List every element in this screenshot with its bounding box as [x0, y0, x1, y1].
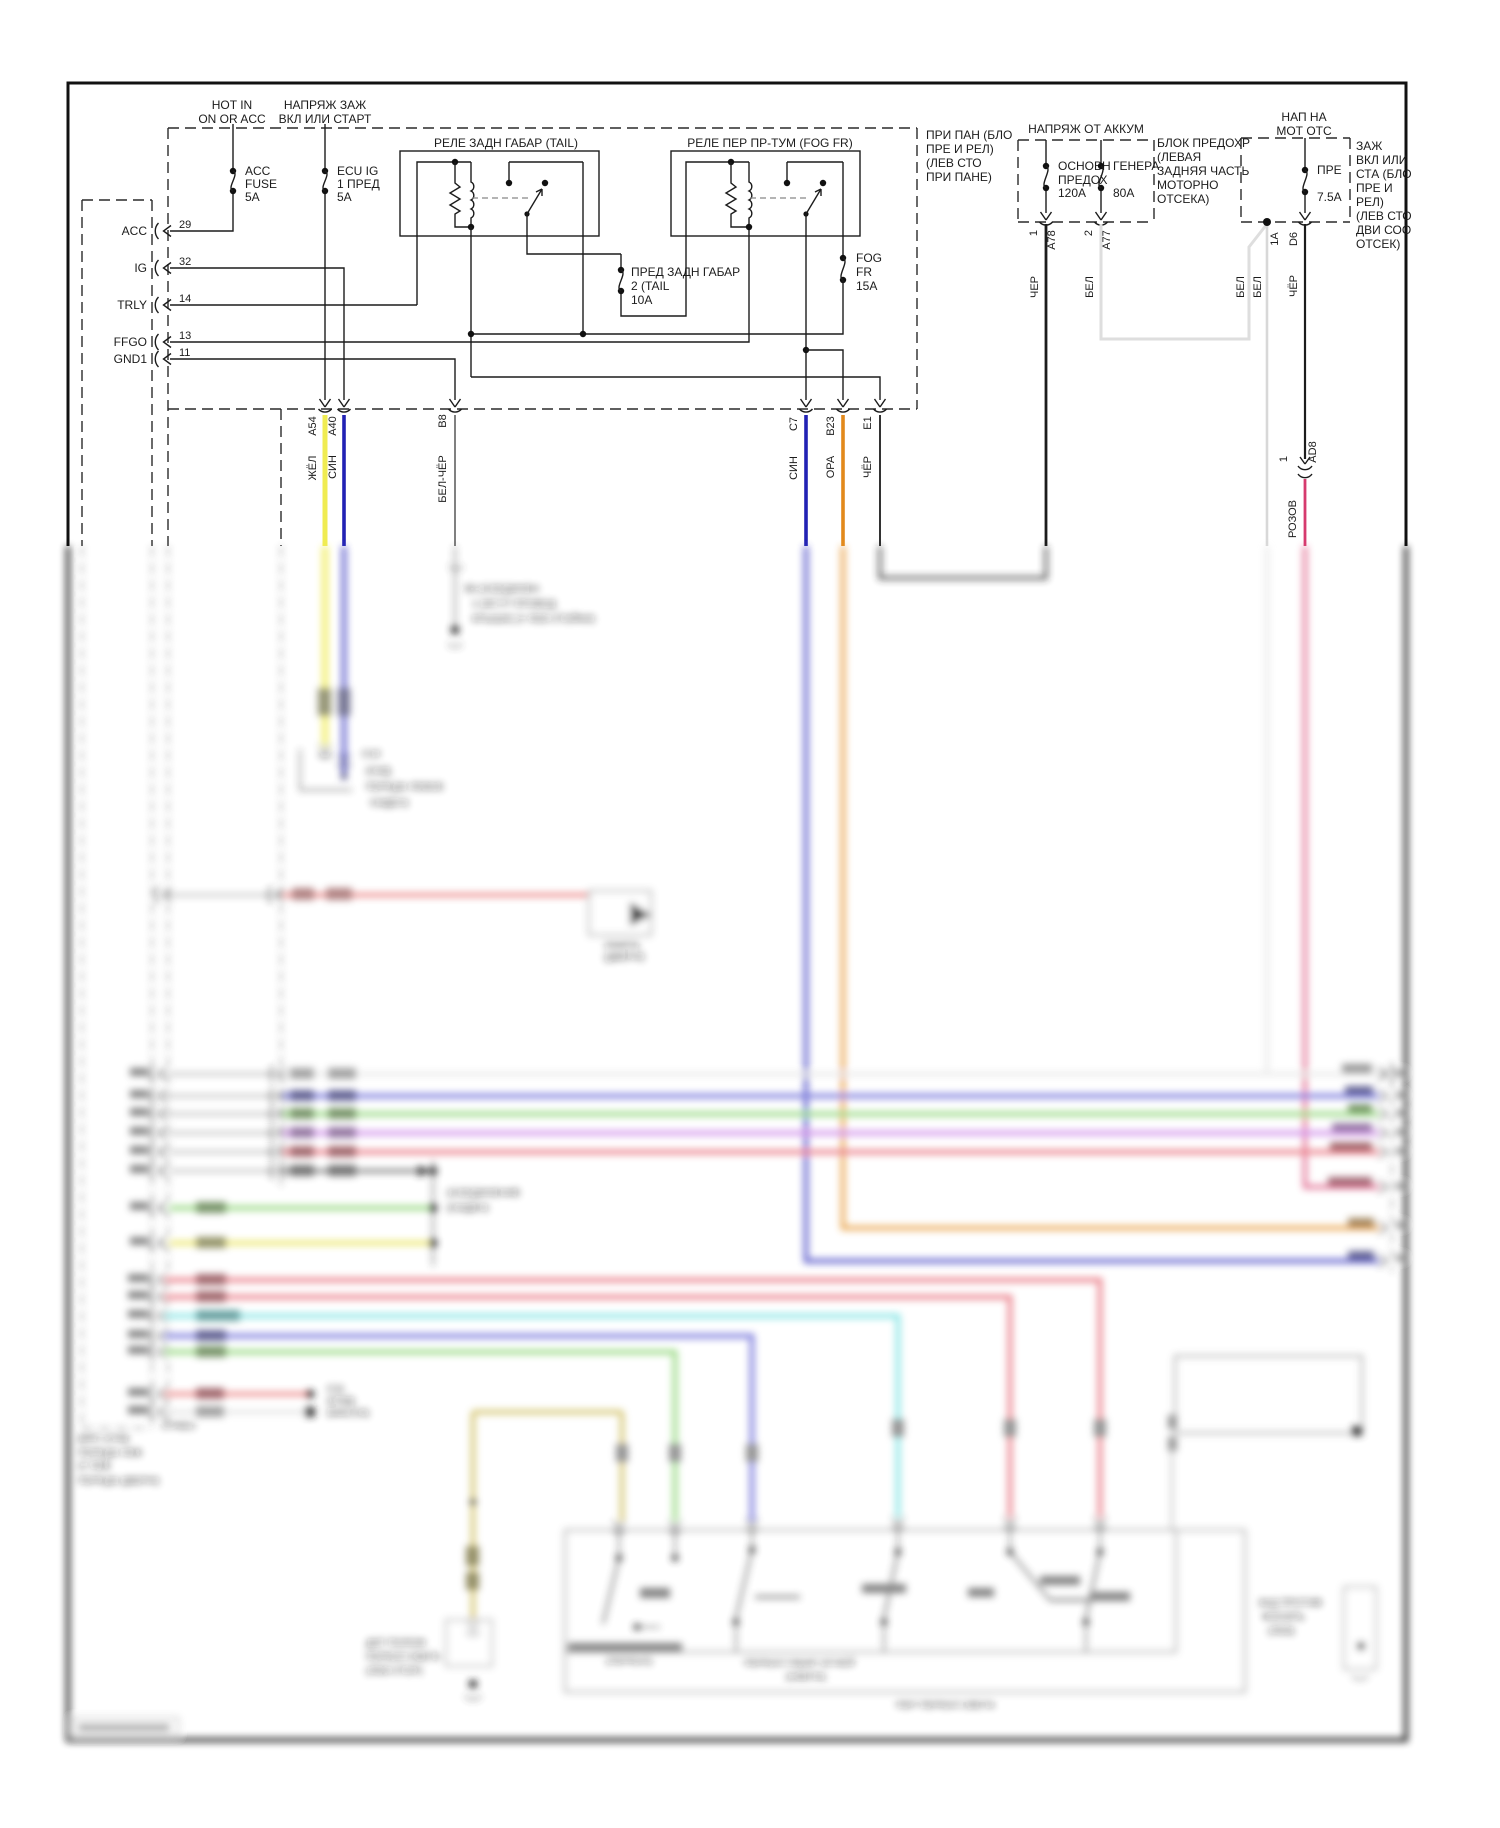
svg-text:МОТ ОТС: МОТ ОТС — [1276, 124, 1332, 138]
svg-text:ЖЁЛ: ЖЁЛ — [307, 456, 319, 481]
svg-text:GND1: GND1 — [114, 352, 148, 366]
svg-text:C7: C7 — [788, 417, 800, 431]
svg-text:ПРЕ И РЕЛ): ПРЕ И РЕЛ) — [926, 142, 994, 156]
svg-text:(ЛЕВ СТОР): (ЛЕВ СТОР) — [366, 1666, 422, 1677]
svg-text:НАПРЯЖ ЗАЖ: НАПРЯЖ ЗАЖ — [284, 98, 366, 112]
svg-text:5A: 5A — [337, 190, 352, 204]
svg-text:S5 (СОЕДИНЕН: S5 (СОЕДИНЕН — [464, 584, 539, 595]
svg-text:TRLY: TRLY — [117, 298, 147, 312]
svg-text:ЧЕР: ЧЕР — [1029, 276, 1041, 298]
svg-text:ОТСЕК): ОТСЕК) — [1356, 237, 1400, 251]
svg-text:HOT IN: HOT IN — [212, 98, 252, 112]
svg-text:ВКЛ ИЛИ: ВКЛ ИЛИ — [1356, 153, 1407, 167]
svg-text:FR: FR — [856, 265, 872, 279]
svg-text:ECU IG: ECU IG — [337, 164, 378, 178]
svg-text:РЕЛЕ ЗАДН ГАБАР (TAIL): РЕЛЕ ЗАДН ГАБАР (TAIL) — [434, 136, 578, 150]
svg-text:(ЛЕВАЯ: (ЛЕВАЯ — [1157, 150, 1201, 164]
svg-text:D6: D6 — [1288, 232, 1300, 246]
svg-text:B23: B23 — [825, 416, 837, 436]
svg-text:БЛОК ПРЕДОХР: БЛОК ПРЕДОХР — [1157, 136, 1250, 150]
svg-text:ACC: ACC — [122, 224, 148, 238]
svg-text:(МАССА): (МАССА) — [327, 1408, 369, 1419]
svg-text:С10: С10 — [362, 749, 381, 760]
svg-text:БЕЛ: БЕЛ — [1084, 276, 1096, 298]
svg-text:ПЕРЕДН ДВЕРИ): ПЕРЕДН ДВЕРИ) — [78, 1476, 159, 1487]
svg-text:2 (TAIL: 2 (TAIL — [631, 279, 670, 293]
svg-text:FUSE: FUSE — [245, 177, 277, 191]
svg-text:ПЕРЕКЛ ГАБАР ОГНЕЙ: ПЕРЕКЛ ГАБАР ОГНЕЙ — [744, 1656, 855, 1669]
svg-text:29: 29 — [179, 219, 191, 231]
svg-text:ГЕНЕРА: ГЕНЕРА — [1113, 159, 1159, 173]
svg-text:РЕЛ): РЕЛ) — [1356, 195, 1384, 209]
svg-text:НАП НА: НАП НА — [1281, 110, 1326, 124]
svg-text:СИДЕН): СИДЕН) — [370, 798, 408, 809]
svg-text:ПРЕ: ПРЕ — [1317, 163, 1342, 177]
svg-text:ON OR ACC: ON OR ACC — [198, 112, 266, 126]
svg-text:МОТОРНО: МОТОРНО — [1157, 178, 1218, 192]
svg-text:1: 1 — [1028, 230, 1040, 236]
svg-text:A77: A77 — [1101, 230, 1113, 250]
svg-text:ПРЕ И: ПРЕ И — [1356, 181, 1393, 195]
svg-text:СТА (БЛО: СТА (БЛО — [1356, 167, 1412, 181]
svg-text:БЕЛ: БЕЛ — [1235, 276, 1247, 298]
svg-text:1: 1 — [1278, 456, 1290, 462]
svg-text:ЗАД ПРОТИВ: ЗАД ПРОТИВ — [1258, 1598, 1322, 1609]
svg-text:A54: A54 — [307, 416, 319, 436]
svg-text:E1: E1 — [862, 416, 874, 429]
svg-text:СИН: СИН — [788, 456, 800, 480]
svg-text:(СИД: (СИД — [366, 766, 391, 777]
svg-text:A78: A78 — [1046, 230, 1058, 250]
svg-text:СИН: СИН — [327, 455, 339, 479]
svg-text:ДВИ СОО: ДВИ СОО — [1356, 223, 1411, 237]
svg-text:B8: B8 — [437, 414, 449, 427]
svg-text:5A: 5A — [245, 190, 260, 204]
svg-text:ПРЕД ЗАДН ГАБАР: ПРЕД ЗАДН ГАБАР — [631, 265, 740, 279]
svg-text:ЧЁР: ЧЁР — [1288, 275, 1300, 297]
svg-text:ЗАЖ: ЗАЖ — [1356, 139, 1382, 153]
svg-text:БЕЛ-ЧЁР: БЕЛ-ЧЁР — [437, 455, 449, 502]
svg-text:ПЕРЕДН ЛЕВОЕ: ПЕРЕДН ЛЕВОЕ — [366, 782, 444, 793]
svg-text:(СИДЕН): (СИДЕН) — [447, 1203, 489, 1214]
svg-text:ПЕР ПЕРЕКЛ СВЕТА: ПЕР ПЕРЕКЛ СВЕТА — [896, 1700, 995, 1711]
svg-text:ЛАМПА: ЛАМПА — [604, 940, 640, 951]
svg-text:ПЕРЕКЛ СВЕТА: ПЕРЕКЛ СВЕТА — [366, 1652, 442, 1663]
svg-text:(У ЛЕВ: (У ЛЕВ — [78, 1461, 111, 1472]
svg-text:РЕЛЕ ПЕР ПР-ТУМ (FOG FR): РЕЛЕ ПЕР ПР-ТУМ (FOG FR) — [687, 136, 852, 150]
svg-text:1 (ЖГУТ ПРОВОД: 1 (ЖГУТ ПРОВОД — [472, 599, 556, 610]
svg-text:32: 32 — [179, 256, 191, 268]
svg-text:(СВЕТА): (СВЕТА) — [786, 1672, 826, 1683]
svg-text:10A: 10A — [631, 293, 652, 307]
svg-text:15A: 15A — [856, 279, 877, 293]
svg-text:FOG: FOG — [856, 251, 882, 265]
svg-text:IG: IG — [134, 261, 147, 275]
svg-text:(СОЕДИНЕНИЕ: (СОЕДИНЕНИЕ — [447, 1188, 521, 1199]
svg-text:ЗАДНЯЯ ЧАСТЬ: ЗАДНЯЯ ЧАСТЬ — [1157, 164, 1249, 178]
svg-text:1 ПРЕД: 1 ПРЕД — [337, 177, 380, 191]
svg-text:ФОНАРЬ: ФОНАРЬ — [1262, 1612, 1305, 1623]
svg-text:A40: A40 — [327, 416, 339, 436]
svg-text:14: 14 — [179, 293, 191, 305]
svg-text:КРЫШИ) (У ЛЕВ СТОЙКИ): КРЫШИ) (У ЛЕВ СТОЙКИ) — [472, 612, 595, 625]
svg-text:13: 13 — [179, 330, 191, 342]
svg-text:80A: 80A — [1113, 186, 1134, 200]
svg-text:ОТСЕКА): ОТСЕКА) — [1157, 192, 1209, 206]
svg-text:ПРИ ПАН (БЛО: ПРИ ПАН (БЛО — [926, 128, 1012, 142]
svg-text:БЕЛ: БЕЛ — [1252, 276, 1264, 298]
svg-text:ОРА: ОРА — [825, 455, 837, 478]
svg-text:ДЖС (СИД: ДЖС (СИД — [78, 1433, 129, 1444]
svg-text:AD8: AD8 — [1307, 441, 1319, 462]
svg-text:11: 11 — [179, 347, 190, 359]
svg-text:FFGO: FFGO — [114, 335, 147, 349]
svg-text:7.5A: 7.5A — [1317, 190, 1342, 204]
svg-text:(ЛЕВ СТО: (ЛЕВ СТО — [1356, 209, 1412, 223]
svg-text:(СИД1): (СИД1) — [162, 1420, 195, 1431]
svg-text:ВКЛ ИЛИ СТАРТ: ВКЛ ИЛИ СТАРТ — [279, 112, 372, 126]
svg-text:120A: 120A — [1058, 186, 1086, 200]
svg-text:ПРИ ПАНЕ): ПРИ ПАНЕ) — [926, 170, 992, 184]
svg-text:ЧЁР: ЧЁР — [862, 456, 874, 478]
svg-text:1А: 1А — [1269, 232, 1281, 246]
svg-text:ACC: ACC — [245, 164, 271, 178]
svg-text:(СИД): (СИД) — [327, 1396, 355, 1407]
svg-text:ДАТ ПОЛОЖ: ДАТ ПОЛОЖ — [366, 1638, 427, 1649]
svg-text:(ДВЕРИ): (ДВЕРИ) — [604, 952, 645, 963]
svg-text:НАПРЯЖ ОТ АККУМ: НАПРЯЖ ОТ АККУМ — [1028, 122, 1144, 136]
svg-text:(ЛЕВ): (ЛЕВ) — [1268, 1626, 1295, 1637]
svg-text:(ЛЕВ СТО: (ЛЕВ СТО — [926, 156, 982, 170]
svg-text:ПЕРЕДН ЛЕВ: ПЕРЕДН ЛЕВ — [78, 1448, 142, 1459]
svg-text:2: 2 — [1083, 230, 1095, 236]
svg-text:(ПЕРЕКЛ): (ПЕРЕКЛ) — [606, 1656, 652, 1667]
svg-text:РОЗОВ: РОЗОВ — [1287, 500, 1299, 538]
svg-text:C11: C11 — [327, 1384, 345, 1395]
